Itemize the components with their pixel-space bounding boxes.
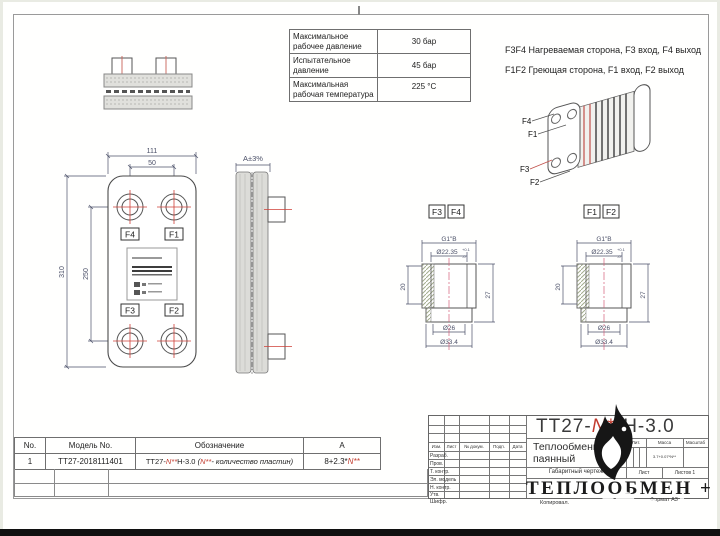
parts-header-row: No. Модель No. Обозначение A [15,438,381,454]
section-view-f3f4: F3 F4 G1"B Ø22.35 +0.1 -0 20 27 Ø26 Ø33.… [398,202,503,354]
watermark-text: Avito [642,494,713,527]
hdr-podp: Подп. [489,444,509,449]
dim-height: 27 [485,291,492,299]
cell-model: ТТ27-2018111401 [46,454,136,470]
front-view: 111 50 310 250 F4 F1 F3 F2 [50,140,200,375]
dim-bore: Ø22.35 [591,249,613,256]
note-heated-side: F3F4 Нагреваемая сторона, F3 вход, F4 вы… [505,45,701,55]
dim-height: 310 [59,266,66,278]
section-view-f1f2: F1 F2 G1"B Ø22.35 +0.1 -0 20 27 Ø26 Ø33.… [553,202,658,354]
dim-bore-tol-up: +0.1 [462,247,471,252]
section-tag: F4 [451,207,461,217]
watermark: Avito [597,489,713,531]
col-model: Модель No. [46,438,136,454]
iso-label-f3: F3 [520,165,530,174]
desig-suffix: H-3.0 [177,457,195,466]
spec-row: Максимальная рабочая температура 225 °C [290,78,471,102]
divider [108,483,109,496]
dim-bore-tol-up: +0.1 [617,247,626,252]
row-utv: Утв. [430,492,440,498]
cell-no: 1 [15,454,46,470]
divider [54,469,55,483]
iso-label-f2: F2 [530,178,540,187]
col-scale: Масштаб [683,440,708,445]
isometric-view: F4 F1 F3 F2 [520,84,655,190]
cell-designation: ТТ27-N**H-3.0 (N**- количество пластин) [136,454,304,470]
dim-thread: G1"B [596,236,611,243]
port-label-f2: F2 [169,306,179,316]
note-heating-side: F1F2 Греющая сторона, F1 вход, F2 выход [505,65,684,75]
spec-label: Максимальное рабочее давление [290,30,378,54]
title-block: ТТ27-N**H-3.0 Изм. Лист № докум. Подп. Д… [428,415,709,499]
divider [54,483,55,496]
spec-table: Максимальное рабочее давление 30 бар Исп… [289,29,471,102]
dim-depth: 20 [400,283,407,291]
desig-n: N** [166,457,177,466]
dim-height: 27 [640,291,647,299]
avito-logo-icon [597,489,639,531]
iso-label-f4: F4 [522,117,532,126]
desig-prefix: ТТ27- [146,457,166,466]
nameplate-sticker [127,248,177,300]
parts-table: No. Модель No. Обозначение A 1 ТТ27-2018… [14,437,381,470]
hdr-data: Дата [509,444,526,449]
sheets-label: Листов 1 [662,470,708,476]
side-view: A±3% [222,152,312,380]
mass-formula: 3.7+0.07*N** [646,454,683,459]
cell-a: 8+2.3*N** [304,454,381,470]
port-label-f1: F1 [169,230,179,240]
hdr-list: Лист [444,444,459,449]
parts-row: 1 ТТ27-2018111401 ТТ27-N**H-3.0 (N**- ко… [15,454,381,470]
spec-value: 45 бар [378,54,471,78]
spec-label: Максимальная рабочая температура [290,78,378,102]
section-tag: F3 [432,207,442,217]
col-designation: Обозначение [136,438,304,454]
col-mass: Масса [646,440,683,445]
spec-value: 30 бар [378,30,471,54]
row-tkontr: Т. контр. [430,469,450,475]
col-a: A [304,438,381,454]
dim-bore-tol-dn: -0 [617,254,621,259]
dim-thread: G1"B [441,236,456,243]
divider [108,469,109,483]
dim-bore-tol-dn: -0 [462,254,466,259]
desig-p1: ТТ27- [536,416,592,437]
spec-row: Испытательное давление 45 бар [290,54,471,78]
section-tag: F2 [606,207,616,217]
mini-exchanger-icon [98,56,198,110]
port-label-f3: F3 [125,306,135,316]
frame-row-2 [14,483,428,497]
iso-label-f1: F1 [528,130,538,139]
top-center-mark [358,6,360,15]
desig-note: - количество пластин) [211,457,293,466]
hdr-izm: Изм. [429,444,444,449]
row-model: Эл. модель [430,477,456,483]
dim-width: 111 [147,148,158,155]
desig-note-n: N** [200,457,211,466]
dim-port-height: 250 [83,268,90,280]
copied-label: Копировал. [540,500,569,506]
bottom-black-bar [0,529,720,536]
drawing-sheet: Максимальное рабочее давление 30 бар Исп… [0,0,720,536]
port-label-f4: F4 [125,230,135,240]
dim-port-span: 50 [148,160,156,167]
hdr-doc: № докум. [459,444,489,449]
dim-depth: 20 [555,283,562,291]
flame-logo-icon [586,402,642,482]
spec-row: Максимальное рабочее давление 30 бар [290,30,471,54]
a-formula: 8+2.3* [324,457,347,466]
doc-name-line2: паянный [533,453,575,465]
dim-thickness: A±3% [243,154,263,163]
spec-label: Испытательное давление [290,54,378,78]
row-prov: Пров. [430,461,443,467]
dim-bore: Ø22.35 [436,249,458,256]
col-no: No. [15,438,46,454]
spec-value: 225 °C [378,78,471,102]
section-tag: F1 [587,207,597,217]
frame-row-1 [14,469,428,484]
cipher-label: Шифр. [430,499,447,505]
row-nkontr: Н. контр. [430,485,451,491]
a-n: N** [348,457,360,466]
row-razrab: Разраб. [430,453,448,459]
